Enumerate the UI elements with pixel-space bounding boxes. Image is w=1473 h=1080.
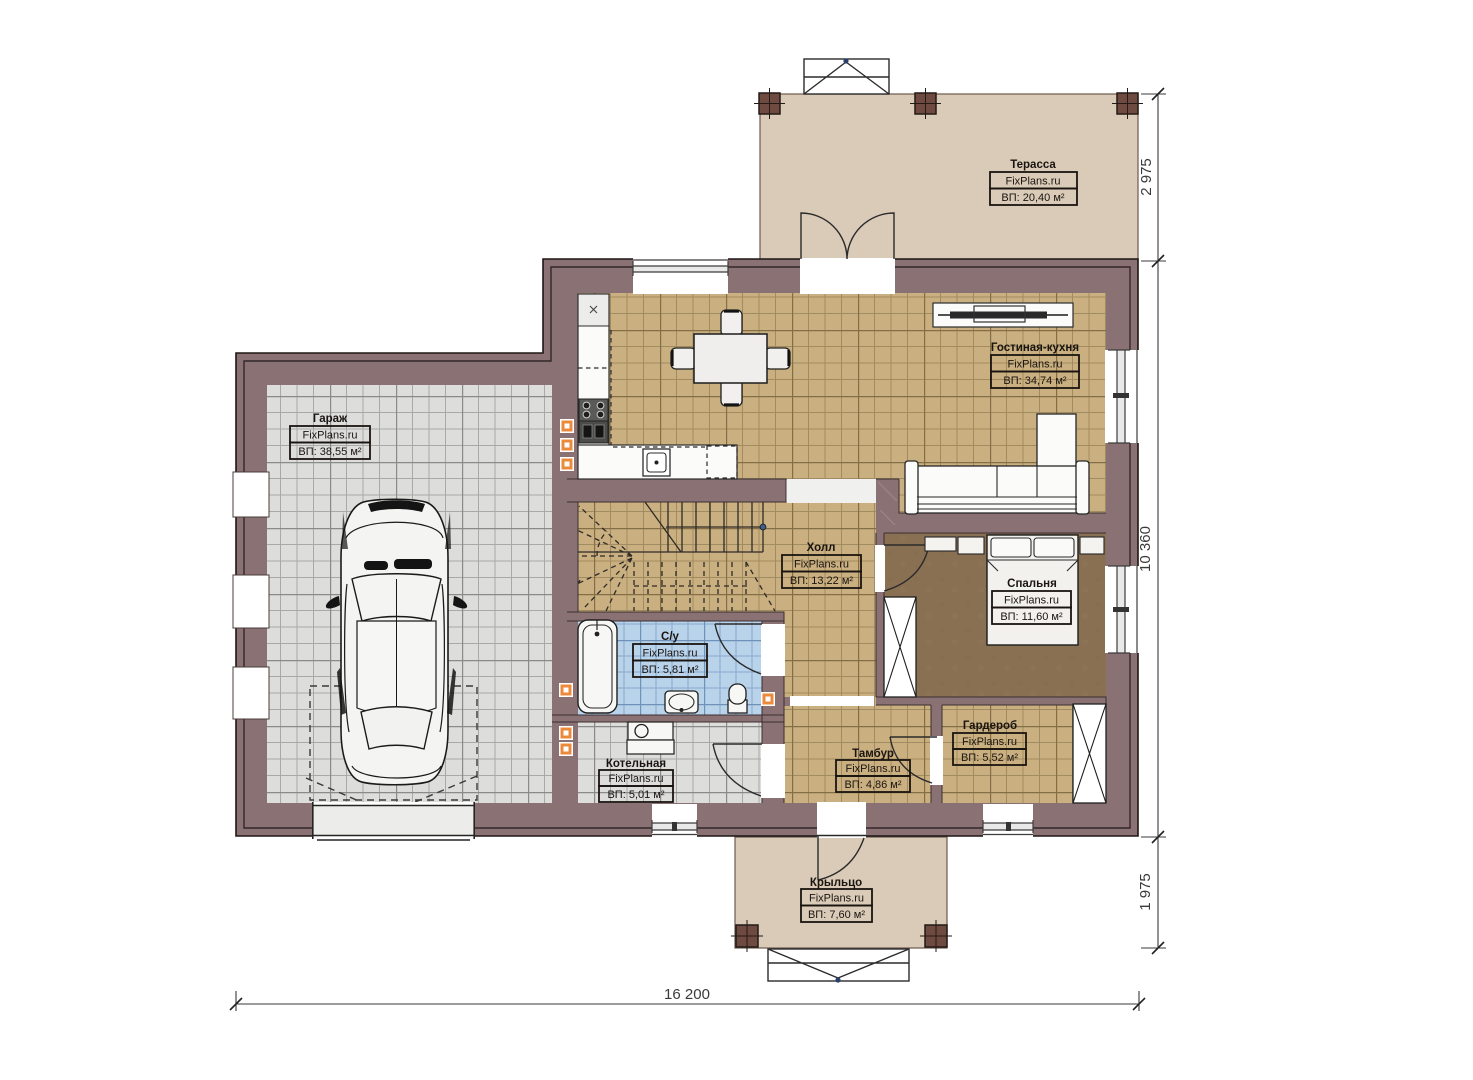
svg-text:FixPlans.ru: FixPlans.ru xyxy=(1007,359,1062,371)
svg-text:ВП: 38,55 м²: ВП: 38,55 м² xyxy=(298,446,362,458)
svg-text:С/у: С/у xyxy=(661,631,680,643)
svg-text:FixPlans.ru: FixPlans.ru xyxy=(962,736,1017,748)
svg-text:FixPlans.ru: FixPlans.ru xyxy=(302,430,357,442)
svg-text:FixPlans.ru: FixPlans.ru xyxy=(794,559,849,571)
svg-text:FixPlans.ru: FixPlans.ru xyxy=(608,773,663,785)
svg-text:Спальня: Спальня xyxy=(1007,578,1057,590)
svg-text:1 975: 1 975 xyxy=(1137,873,1154,911)
svg-text:2 975: 2 975 xyxy=(1138,158,1155,196)
svg-text:Гостиная-кухня: Гостиная-кухня xyxy=(991,342,1079,354)
svg-text:FixPlans.ru: FixPlans.ru xyxy=(1005,176,1060,188)
svg-text:FixPlans.ru: FixPlans.ru xyxy=(1004,595,1059,607)
svg-text:ВП: 7,60 м²: ВП: 7,60 м² xyxy=(808,909,865,921)
svg-text:Котельная: Котельная xyxy=(606,758,666,770)
svg-text:16 200: 16 200 xyxy=(664,986,710,1003)
svg-text:Гардероб: Гардероб xyxy=(963,720,1017,732)
svg-text:10 360: 10 360 xyxy=(1137,526,1154,572)
svg-text:Гараж: Гараж xyxy=(313,413,348,425)
svg-text:FixPlans.ru: FixPlans.ru xyxy=(845,763,900,775)
svg-text:ВП: 11,60 м²: ВП: 11,60 м² xyxy=(1000,611,1063,623)
svg-text:Холл: Холл xyxy=(807,542,836,554)
svg-text:Крыльцо: Крыльцо xyxy=(810,877,862,889)
svg-text:ВП: 13,22 м²: ВП: 13,22 м² xyxy=(790,575,854,587)
svg-text:ВП: 5,01 м²: ВП: 5,01 м² xyxy=(607,789,664,801)
svg-text:ВП: 20,40 м²: ВП: 20,40 м² xyxy=(1001,192,1065,204)
svg-text:ВП: 34,74 м²: ВП: 34,74 м² xyxy=(1003,375,1067,387)
svg-text:Тамбур: Тамбур xyxy=(852,748,894,760)
svg-text:ВП: 4,86 м²: ВП: 4,86 м² xyxy=(844,779,901,791)
svg-text:ВП: 5,81 м²: ВП: 5,81 м² xyxy=(641,664,698,676)
svg-text:Терасса: Терасса xyxy=(1010,159,1056,171)
svg-text:FixPlans.ru: FixPlans.ru xyxy=(809,893,864,905)
svg-text:FixPlans.ru: FixPlans.ru xyxy=(642,648,697,660)
svg-text:ВП: 5,52 м²: ВП: 5,52 м² xyxy=(961,752,1018,764)
